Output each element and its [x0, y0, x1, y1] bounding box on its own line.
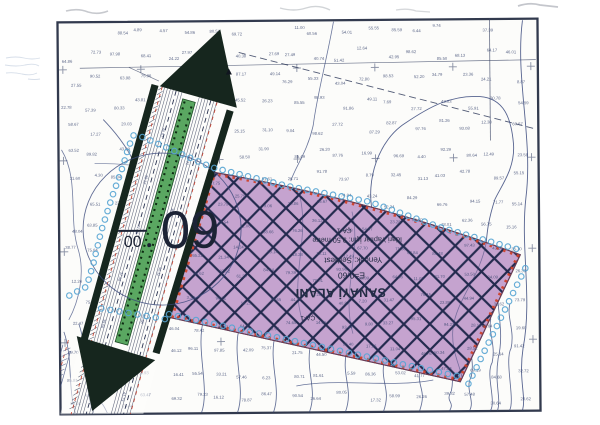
svg-text:45.52: 45.52 [235, 97, 246, 102]
svg-text:97.85: 97.85 [214, 348, 225, 353]
svg-text:51.42: 51.42 [334, 58, 345, 63]
svg-text:89.82: 89.82 [86, 152, 97, 157]
svg-text:25.64: 25.64 [493, 351, 504, 356]
svg-text:88.54: 88.54 [118, 30, 129, 35]
svg-text:26.64: 26.64 [310, 396, 321, 401]
svg-text:94.15: 94.15 [470, 199, 481, 204]
svg-text:91.78: 91.78 [317, 169, 328, 174]
svg-text:97.98: 97.98 [110, 51, 121, 56]
svg-text:73.97: 73.97 [339, 177, 350, 182]
svg-text:46.12: 46.12 [171, 348, 182, 353]
svg-text:72.73: 72.73 [91, 50, 102, 55]
svg-text:98.93: 98.93 [314, 95, 325, 100]
svg-text:İdari Yapılar İçin: 9.50 metre: İdari Yapılar İçin: 9.50 metre [312, 235, 402, 245]
svg-text:84.29: 84.29 [407, 195, 418, 200]
svg-text:67.70: 67.70 [357, 245, 368, 250]
svg-text:31.62: 31.62 [494, 301, 505, 306]
svg-text:27.72: 27.72 [332, 122, 343, 127]
svg-text:ÇA-1: ÇA-1 [336, 227, 351, 234]
svg-text:6.23: 6.23 [262, 375, 271, 380]
svg-text:8.79: 8.79 [366, 172, 375, 177]
svg-text:53.02: 53.02 [395, 370, 406, 375]
svg-text:87.29: 87.29 [369, 129, 380, 134]
svg-text:57.39: 57.39 [85, 108, 96, 113]
svg-text:57.46: 57.46 [236, 374, 247, 379]
svg-text:23.14: 23.14 [267, 249, 278, 254]
svg-text:26.20: 26.20 [319, 147, 330, 152]
svg-text:93.08: 93.08 [459, 126, 470, 131]
svg-text:4.30: 4.30 [95, 173, 104, 178]
svg-text:27.55: 27.55 [71, 83, 82, 88]
svg-text:75.96: 75.96 [141, 73, 152, 78]
svg-text:19.60: 19.60 [516, 325, 527, 330]
svg-text:22.78: 22.78 [61, 105, 72, 110]
svg-text:4.89: 4.89 [134, 27, 143, 32]
svg-text:73.79: 73.79 [515, 297, 526, 302]
svg-text:32.72: 32.72 [518, 368, 529, 373]
svg-text:31.70: 31.70 [434, 274, 445, 279]
svg-text:90.54: 90.54 [292, 393, 303, 398]
svg-text:43.04: 43.04 [335, 81, 346, 86]
svg-text:9.04: 9.04 [286, 128, 295, 133]
svg-text:46.01: 46.01 [506, 49, 517, 54]
svg-text:47.54: 47.54 [441, 366, 452, 371]
svg-text:85.55: 85.55 [294, 100, 305, 105]
svg-text:11.04: 11.04 [390, 346, 401, 351]
svg-text:43.81: 43.81 [135, 97, 146, 102]
svg-text:23.58: 23.58 [518, 152, 529, 157]
svg-text:18.28: 18.28 [292, 252, 303, 257]
svg-text:41.03: 41.03 [435, 173, 446, 178]
svg-text:48.04: 48.04 [72, 229, 83, 234]
svg-text:55.91: 55.91 [468, 106, 479, 111]
svg-text:55.33: 55.33 [308, 76, 319, 81]
svg-text:63.98: 63.98 [120, 75, 131, 80]
svg-text:60: 60 [160, 199, 219, 258]
svg-text:27.49: 27.49 [285, 52, 296, 57]
svg-text:34.09: 34.09 [487, 274, 498, 279]
svg-text:86.65: 86.65 [271, 297, 282, 302]
svg-text:85.59: 85.59 [392, 27, 403, 32]
svg-text:9.06: 9.06 [264, 203, 273, 208]
svg-text:23.36: 23.36 [463, 72, 474, 77]
svg-text:60.56: 60.56 [307, 31, 318, 36]
svg-text:79.39: 79.39 [285, 270, 296, 275]
svg-text:81.26: 81.26 [439, 118, 450, 123]
svg-text:84.68: 84.68 [491, 374, 502, 379]
svg-text:4.40: 4.40 [418, 154, 427, 159]
svg-text:30.64: 30.64 [490, 400, 501, 405]
svg-text:62.84: 62.84 [407, 250, 418, 255]
svg-text:95.31: 95.31 [411, 316, 422, 321]
svg-text:42.95: 42.95 [389, 54, 400, 59]
svg-text:16.41: 16.41 [173, 372, 184, 377]
svg-text:49.14: 49.14 [270, 71, 281, 76]
svg-text:53.50: 53.50 [464, 272, 475, 277]
svg-text:4.57: 4.57 [160, 28, 169, 33]
svg-text:00: 00 [124, 232, 142, 249]
svg-text:7.69: 7.69 [383, 99, 392, 104]
svg-text:58.50: 58.50 [240, 154, 251, 159]
svg-text:70.01: 70.01 [312, 278, 323, 283]
svg-text:71.36: 71.36 [395, 246, 406, 251]
svg-text:31.60: 31.60 [70, 176, 81, 181]
svg-text:92.29: 92.29 [440, 147, 451, 152]
svg-text:13.11: 13.11 [316, 251, 327, 256]
svg-text:35.10: 35.10 [511, 246, 522, 251]
svg-text:30.78: 30.78 [490, 95, 501, 100]
svg-text:72.80: 72.80 [359, 76, 370, 81]
svg-text:58.66: 58.66 [263, 229, 274, 234]
svg-text:80.71: 80.71 [294, 374, 305, 379]
svg-text:11.00: 11.00 [295, 25, 306, 30]
svg-text:49.11: 49.11 [367, 96, 378, 101]
svg-text:44.94: 44.94 [464, 296, 475, 301]
svg-text:E=0.60: E=0.60 [338, 270, 366, 280]
svg-text:85.49: 85.49 [295, 154, 306, 159]
svg-text:93.44: 93.44 [342, 325, 353, 330]
svg-text:84.54: 84.54 [263, 267, 274, 272]
svg-text:71.77: 71.77 [493, 199, 504, 204]
svg-text:58.67: 58.67 [68, 122, 79, 127]
svg-text:55.54: 55.54 [192, 371, 203, 376]
svg-text:64.17: 64.17 [487, 47, 498, 52]
svg-text:80.33: 80.33 [114, 105, 125, 110]
svg-text:12.49: 12.49 [483, 151, 494, 156]
svg-text:78.87: 78.87 [241, 397, 252, 402]
svg-text:22.06: 22.06 [240, 223, 251, 228]
svg-text:8.87: 8.87 [517, 79, 526, 84]
svg-text:27.97: 27.97 [182, 50, 193, 55]
svg-text:63.52: 63.52 [68, 148, 79, 153]
svg-text:69.32: 69.32 [171, 396, 182, 401]
svg-text:68.13: 68.13 [455, 53, 466, 58]
svg-text:96.69: 96.69 [394, 153, 405, 158]
svg-text:96.40: 96.40 [343, 342, 354, 347]
svg-text:16.99: 16.99 [361, 150, 372, 155]
svg-text:26.71: 26.71 [288, 176, 299, 181]
svg-text:97.43: 97.43 [464, 243, 475, 248]
svg-text:68.41: 68.41 [141, 53, 152, 58]
svg-text:39.32: 39.32 [444, 391, 455, 396]
svg-text:28.62: 28.62 [520, 396, 531, 401]
svg-text:86.36: 86.36 [365, 371, 376, 376]
svg-text:42.09: 42.09 [243, 347, 254, 352]
svg-text:91.42: 91.42 [514, 343, 525, 348]
svg-text:20.03: 20.03 [121, 121, 132, 126]
svg-text:91.86: 91.86 [343, 106, 354, 111]
svg-text:ÇA-1: ÇA-1 [300, 314, 315, 321]
svg-text:17.27: 17.27 [90, 132, 101, 137]
svg-text:47.64: 47.64 [482, 323, 493, 328]
svg-text:65.51: 65.51 [90, 202, 101, 207]
svg-text:96.51: 96.51 [216, 296, 227, 301]
svg-text:27.69: 27.69 [269, 51, 280, 56]
svg-text:38.77: 38.77 [65, 245, 76, 250]
svg-text:25.75: 25.75 [235, 193, 246, 198]
svg-text:40.87: 40.87 [339, 301, 350, 306]
svg-text:56.75: 56.75 [481, 221, 492, 226]
svg-text:76.15: 76.15 [421, 292, 432, 297]
svg-text:62.36: 62.36 [462, 218, 473, 223]
svg-text:32.45: 32.45 [391, 172, 402, 177]
svg-text:31.10: 31.10 [262, 127, 273, 132]
svg-text:41.77: 41.77 [414, 373, 425, 378]
svg-text:52.20: 52.20 [414, 74, 425, 79]
svg-text:54.97: 54.97 [362, 226, 373, 231]
svg-text:23.28: 23.28 [390, 219, 401, 224]
svg-text:12.38: 12.38 [481, 119, 492, 124]
svg-text:46.76: 46.76 [421, 351, 432, 356]
svg-text:42.78: 42.78 [460, 169, 471, 174]
svg-text:14.25: 14.25 [241, 300, 252, 305]
svg-text:81.61: 81.61 [313, 373, 324, 378]
svg-text:64.82: 64.82 [240, 323, 251, 328]
svg-text:40.74: 40.74 [314, 56, 325, 61]
svg-text:24.22: 24.22 [169, 56, 180, 61]
svg-text:31.13: 31.13 [418, 176, 429, 181]
svg-text:58.99: 58.99 [389, 393, 400, 398]
svg-text:3.37: 3.37 [187, 295, 196, 300]
svg-text:46.04: 46.04 [169, 326, 180, 331]
svg-text:12.64: 12.64 [357, 45, 368, 50]
svg-text:27.72: 27.72 [411, 106, 422, 111]
svg-text:75.37: 75.37 [261, 345, 272, 350]
svg-text:80.05: 80.05 [336, 390, 347, 395]
svg-text:33.27: 33.27 [383, 320, 394, 325]
svg-text:21.75: 21.75 [292, 350, 303, 355]
svg-text:23.89: 23.89 [440, 300, 451, 305]
svg-text:57.48: 57.48 [464, 392, 475, 397]
svg-text:78.42: 78.42 [194, 328, 205, 333]
svg-text:54.86: 54.86 [185, 30, 196, 35]
svg-text:24.21: 24.21 [481, 76, 492, 81]
svg-text:6.44: 6.44 [413, 28, 422, 33]
svg-text:26.23: 26.23 [262, 98, 273, 103]
svg-text:98.62: 98.62 [312, 131, 323, 136]
svg-text:34.79: 34.79 [432, 72, 443, 77]
svg-text:94.23: 94.23 [444, 322, 455, 327]
svg-text:12.24: 12.24 [71, 279, 82, 284]
svg-text:55.55: 55.55 [369, 25, 380, 30]
svg-text:25.67: 25.67 [317, 199, 328, 204]
svg-text:97.76: 97.76 [415, 126, 426, 131]
svg-text:66.76: 66.76 [437, 202, 448, 207]
svg-text:17.36: 17.36 [366, 343, 377, 348]
svg-text:50.34: 50.34 [434, 350, 445, 355]
svg-text:25.15: 25.15 [234, 128, 245, 133]
svg-text:20.86: 20.86 [288, 201, 299, 206]
svg-text:89.57: 89.57 [494, 175, 505, 180]
svg-text:36.12: 36.12 [312, 218, 323, 223]
svg-text:17.32: 17.32 [370, 397, 381, 402]
svg-text:69.72: 69.72 [232, 31, 243, 36]
svg-text:60.67: 60.67 [512, 121, 523, 126]
svg-text:9.74: 9.74 [432, 23, 441, 28]
svg-text:26.26: 26.26 [416, 394, 427, 399]
svg-text:Yençok: Serbest: Yençok: Serbest [324, 255, 383, 264]
svg-text:98.53: 98.53 [383, 73, 394, 78]
svg-text:61.20: 61.20 [236, 273, 247, 278]
svg-text:79.23: 79.23 [197, 392, 208, 397]
svg-text:55.14: 55.14 [512, 201, 523, 206]
svg-text:64.86: 64.86 [62, 59, 73, 64]
svg-text:82.87: 82.87 [386, 120, 397, 125]
svg-text:43.03: 43.03 [441, 99, 452, 104]
svg-text:74.65: 74.65 [286, 320, 297, 325]
svg-text:9.80: 9.80 [365, 321, 374, 326]
svg-text:28.14: 28.14 [471, 323, 482, 328]
svg-text:85.50: 85.50 [437, 56, 448, 61]
svg-text:54.59: 54.59 [518, 100, 529, 105]
svg-text:54.01: 54.01 [342, 30, 353, 35]
svg-text:76.26: 76.26 [292, 228, 303, 233]
svg-text:5.59: 5.59 [347, 371, 356, 376]
svg-text:84.48: 84.48 [432, 251, 443, 256]
svg-text:8.93: 8.93 [271, 326, 280, 331]
svg-text:31.90: 31.90 [258, 146, 269, 151]
svg-text:28.52: 28.52 [467, 346, 478, 351]
svg-text:11.03: 11.03 [413, 276, 424, 281]
svg-text:43.24: 43.24 [367, 193, 378, 198]
svg-text:90.52: 90.52 [90, 74, 101, 79]
svg-text:63.85: 63.85 [87, 223, 98, 228]
svg-text:80.64: 80.64 [467, 153, 478, 158]
svg-text:22.47: 22.47 [73, 321, 84, 326]
svg-text:55.15: 55.15 [514, 170, 525, 175]
svg-text:87.76: 87.76 [333, 153, 344, 158]
svg-text:SANAYİ ALANI: SANAYİ ALANI [295, 285, 386, 301]
svg-text:33.21: 33.21 [216, 372, 227, 377]
svg-text:40.38: 40.38 [236, 53, 247, 58]
svg-text:16.12: 16.12 [213, 395, 224, 400]
svg-text:84.62: 84.62 [193, 271, 204, 276]
svg-text:44.50: 44.50 [316, 352, 327, 357]
svg-text:87.17: 87.17 [236, 71, 247, 76]
svg-text:15.16: 15.16 [506, 224, 517, 229]
svg-text:37.39: 37.39 [483, 27, 494, 32]
svg-text:14.06: 14.06 [316, 320, 327, 325]
svg-text:86.47: 86.47 [261, 391, 272, 396]
svg-text:98.62: 98.62 [406, 49, 417, 54]
svg-text:64.65: 64.65 [392, 274, 403, 279]
svg-text:96.11: 96.11 [188, 346, 199, 351]
svg-text:76.29: 76.29 [282, 79, 293, 84]
